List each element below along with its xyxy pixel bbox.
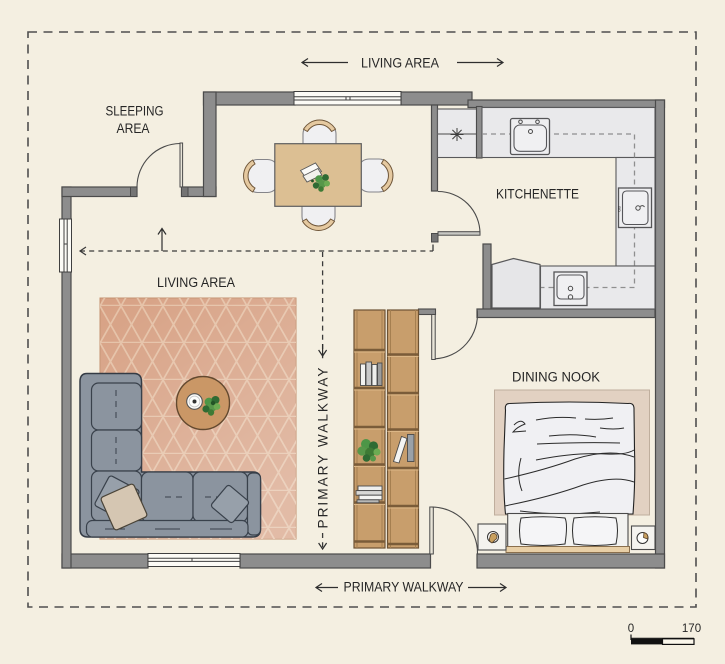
svg-text:LIVING AREA: LIVING AREA — [157, 275, 235, 290]
svg-text:KITCHENETTE: KITCHENETTE — [496, 187, 579, 202]
svg-text:GB: GB — [617, 206, 622, 212]
svg-text:PRIMARY WALKWAY: PRIMARY WALKWAY — [344, 580, 464, 595]
svg-text:SLEEPING: SLEEPING — [106, 104, 164, 119]
svg-text:AREA: AREA — [117, 121, 150, 136]
svg-text:DINING NOOK: DINING NOOK — [512, 370, 600, 385]
svg-text:LIVING AREA: LIVING AREA — [361, 56, 439, 71]
svg-text:170: 170 — [682, 623, 701, 635]
svg-text:0: 0 — [628, 623, 634, 635]
svg-text:PRIMARY WALKWAY: PRIMARY WALKWAY — [316, 366, 331, 529]
